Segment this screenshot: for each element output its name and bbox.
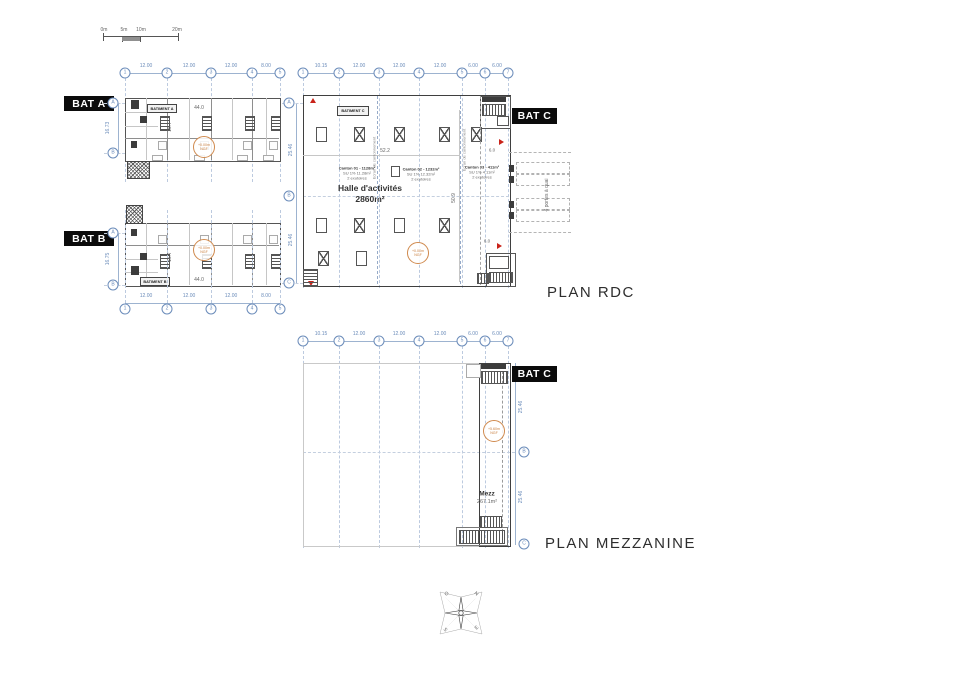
grid-line [167, 210, 168, 303]
dim-text: 25.46 [518, 401, 524, 414]
stair [303, 269, 318, 287]
landing [466, 364, 481, 378]
unit-partition [232, 223, 233, 285]
fire-access-marker [310, 98, 316, 103]
grid-bubble: 2 [334, 68, 345, 79]
dock-bumper [509, 165, 514, 172]
dim-text: 25.46 [518, 491, 524, 504]
grid-line [252, 210, 253, 303]
level-marker: +0.00mNGF [407, 242, 429, 264]
exutoire-vent [316, 218, 327, 233]
exutoire-vent [316, 127, 327, 142]
grid-bubble: A [108, 98, 119, 109]
level-datum: NGF [414, 253, 422, 257]
level-datum: NGF [490, 431, 498, 435]
grid-bubble: 6 [480, 336, 491, 347]
dim-text: 12.00 [393, 63, 406, 69]
dim-text: 16.75 [105, 253, 111, 266]
dim-text: 12.00 [140, 293, 153, 299]
stair [245, 116, 255, 131]
scale-label-0m: 0m [101, 27, 108, 33]
unit-partition [232, 98, 233, 160]
exterior-stair-hatch [127, 161, 150, 179]
truck-bay [516, 174, 570, 186]
wall-block [481, 364, 506, 369]
duct-block [140, 253, 147, 260]
grid-line [125, 210, 126, 303]
unit-partition [189, 223, 190, 285]
exutoire-vent [356, 251, 367, 266]
duct-block [140, 116, 147, 123]
stair [489, 272, 513, 283]
grid-bubble: 4 [414, 68, 425, 79]
canton-label: 2 exutoires [347, 176, 367, 181]
grid-bubble: 3 [206, 68, 217, 79]
truck-bay [516, 162, 570, 174]
stair [459, 530, 505, 544]
compass-rose [431, 583, 491, 643]
level-marker: +0.00mNGF [193, 136, 215, 158]
dim-line [515, 363, 516, 545]
stair [477, 273, 489, 284]
grid-bubble: B [108, 148, 119, 159]
office-partition [125, 126, 158, 127]
grid-bubble: 3 [374, 336, 385, 347]
dim-text: 16.7 [167, 122, 173, 132]
batiment-b-namebox: BATIMENT B [140, 277, 170, 286]
scale-bar-line [103, 36, 179, 37]
dim-text: 6.00 [468, 331, 478, 337]
truck-bay [516, 210, 570, 222]
duct-block [131, 100, 139, 109]
grid-bubble: 6 [480, 68, 491, 79]
dim-text: 52.2 [379, 148, 391, 154]
exutoire-vent [394, 127, 405, 142]
exutoire-vent [394, 218, 405, 233]
dim-text: 6.0 [489, 148, 495, 153]
grid-bubble: 5 [457, 336, 468, 347]
grid-bubble: B [519, 447, 530, 458]
hall-name: Halle d'activités [338, 183, 402, 193]
grid-bubble: 3 [206, 304, 217, 315]
bat-c-tag-rdc: BAT C [512, 108, 557, 124]
stair [271, 116, 281, 131]
scale-bar-fill [122, 37, 140, 41]
grid-bubble: C [284, 278, 295, 289]
scale-tick [178, 33, 179, 41]
dock-bumper [509, 176, 514, 183]
duct-block [131, 229, 137, 236]
scale-tick [140, 36, 141, 42]
stair [480, 516, 502, 528]
level-marker: +5.60mNGF [483, 420, 505, 442]
dim-text: 12.00 [225, 63, 238, 69]
dim-text: 6.00 [468, 63, 478, 69]
grid-bubble: 1 [120, 304, 131, 315]
wall-block [482, 97, 506, 102]
sanitary-block [269, 141, 278, 150]
stair [482, 104, 506, 116]
grid-bubble: 1 [298, 336, 309, 347]
duct-block [131, 141, 137, 148]
stair [202, 116, 212, 131]
dim-line [296, 103, 297, 283]
grid-bubble: C [519, 539, 530, 550]
grid-bubble: 4 [247, 304, 258, 315]
scale-label-10m: 10m [136, 27, 146, 33]
quay-edge [509, 152, 571, 153]
dock-bumper [509, 212, 514, 219]
dim-text: 12.00 [434, 331, 447, 337]
quay-edge [509, 232, 571, 233]
dim-line [118, 233, 119, 285]
exutoire-vent [354, 218, 365, 233]
mezzanine-edge-dashed [480, 96, 481, 285]
dim-text: 16.73 [105, 122, 111, 135]
dim-text: 12.00 [434, 63, 447, 69]
smoke-curtain-label: Ecran de cantonnement [372, 137, 377, 179]
dim-text: 12.00 [183, 293, 196, 299]
batiment-a-namebox: BATIMENT A [147, 104, 177, 113]
bat-c-tag-mezz: BAT C [512, 366, 557, 382]
dim-line [303, 155, 460, 156]
mezzanine-slab-edge [502, 366, 503, 542]
duct-block [131, 266, 139, 275]
grid-bubble: 5 [457, 68, 468, 79]
exutoire-vent [439, 127, 450, 142]
dim-text: 6.00 [492, 331, 502, 337]
level-marker: +0.00mNGF [193, 239, 215, 261]
dim-text: 12.00 [225, 293, 238, 299]
scale-label-5m: 5m [121, 27, 128, 33]
dock-bumper [509, 201, 514, 208]
unit-partition [266, 98, 267, 160]
stair [245, 254, 255, 269]
smoke-curtain-line [460, 96, 461, 284]
door-opening [237, 155, 248, 161]
dim-text: 12.00 [183, 63, 196, 69]
fire-access-marker [497, 243, 502, 249]
sanitary-block [243, 235, 252, 244]
dim-text: 44.0 [194, 105, 204, 111]
dock-doors-label: 4 portes à quai [544, 178, 550, 211]
grid-bubble: A [108, 228, 119, 239]
plan-rdc-title: PLAN RDC [547, 284, 635, 301]
dim-text: 12.00 [353, 63, 366, 69]
dim-text: 10.15 [315, 331, 328, 337]
sanitary-block [269, 235, 278, 244]
canton-label: 2 exutoires [411, 177, 431, 182]
grid-bubble: 3 [374, 68, 385, 79]
scale-label-20m: 20m [172, 27, 182, 33]
grid-bubble: A [284, 98, 295, 109]
hall-area: 2860m² [355, 194, 384, 204]
grid-bubble: 1 [298, 68, 309, 79]
dim-text: 6.0 [484, 239, 490, 244]
exutoire-vent [318, 251, 329, 266]
unit-partition [189, 98, 190, 160]
dim-text: 8.00 [261, 293, 271, 299]
sanitary-block [158, 141, 167, 150]
mezz-room-name: Mezz [479, 491, 495, 498]
dim-text: 6.00 [492, 63, 502, 69]
dim-text: 25.46 [288, 234, 294, 247]
door-opening [152, 155, 163, 161]
dim-line [125, 303, 280, 304]
batiment-c-namebox: BATIMENT C [337, 106, 369, 116]
exterior-stair-hatch [126, 205, 143, 224]
grid-bubble: B [108, 280, 119, 291]
dim-text: 12.00 [353, 331, 366, 337]
grid-bubble: 2 [334, 336, 345, 347]
floor-plan-drawing: 0m 5m 10m 20m BAT A 12.00 12.00 12.00 8.… [0, 0, 960, 677]
fire-access-marker [499, 139, 504, 145]
smoke-curtain-line [377, 96, 378, 284]
dim-text: 10.15 [315, 63, 328, 69]
scale-tick [103, 33, 104, 41]
stair [481, 371, 508, 384]
grid-bubble: 5 [275, 68, 286, 79]
exutoire-vent [391, 166, 400, 177]
plan-mezzanine-title: PLAN MEZZANINE [545, 535, 696, 552]
dim-text: 44.0 [194, 277, 204, 283]
exutoire-vent [439, 218, 450, 233]
grid-bubble: B [284, 191, 295, 202]
door-opening [263, 155, 274, 161]
grid-bubble: 7 [503, 336, 514, 347]
level-datum: NGF [200, 147, 208, 151]
level-datum: NGF [200, 250, 208, 254]
grid-bubble: 2 [162, 304, 173, 315]
canton-label: 2 exutoires [472, 175, 492, 180]
dim-text: 50.9 [451, 193, 457, 203]
dim-line [118, 103, 119, 153]
grid-bubble: 4 [414, 336, 425, 347]
dim-text: 12.00 [393, 331, 406, 337]
dim-text: 25.46 [288, 144, 294, 157]
dim-text: 8.00 [261, 63, 271, 69]
sanitary-block [158, 235, 167, 244]
office-room [489, 256, 509, 269]
office-partition [125, 272, 158, 273]
truck-bay [516, 198, 570, 210]
unit-partition [266, 223, 267, 285]
grid-bubble: 4 [247, 68, 258, 79]
grid-bubble: 7 [503, 68, 514, 79]
grid-bubble: 2 [162, 68, 173, 79]
sanitary-block [243, 141, 252, 150]
exutoire-vent [354, 127, 365, 142]
sanitary-block [497, 116, 509, 126]
grid-bubble: 5 [275, 304, 286, 315]
grid-bubble: 1 [120, 68, 131, 79]
grid-line [280, 210, 281, 303]
dim-text: 12.00 [140, 63, 153, 69]
mezz-room-area: 267.1m² [477, 499, 497, 505]
